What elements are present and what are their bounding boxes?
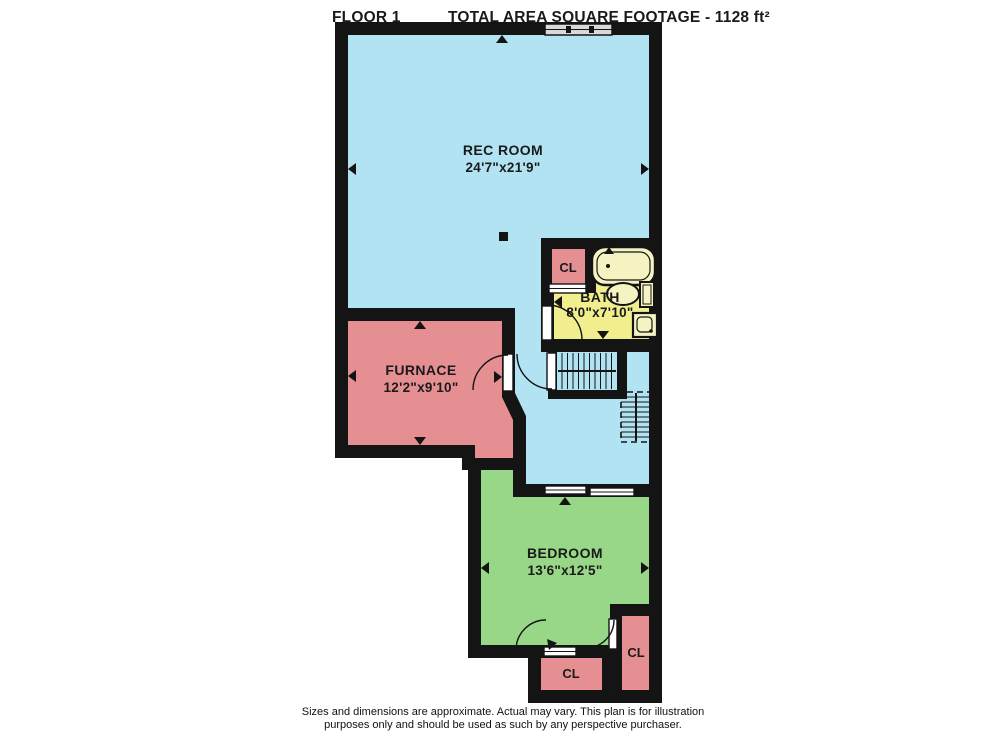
sink-icon (633, 313, 657, 337)
furnace-dims: 12'2"x9'10" (383, 380, 458, 395)
stair-wall-right (617, 345, 627, 395)
bedroom-dims: 13'6"x12'5" (527, 563, 602, 578)
bottom-closet-label: CL (562, 666, 579, 681)
bedroom-label: BEDROOM (527, 545, 603, 561)
rec-room-dims: 24'7"x21'9" (465, 160, 540, 175)
rec-room-label: REC ROOM (463, 142, 543, 158)
disclaimer-line2: purposes only and should be used as such… (324, 719, 682, 731)
stair-wall-bottom (548, 390, 627, 399)
post-marker (499, 232, 508, 241)
bath-closet-label: CL (559, 260, 576, 275)
right-closet-label: CL (627, 645, 644, 660)
window-top (545, 24, 612, 35)
window-bedroom (545, 486, 634, 496)
bath-label: BATH (580, 289, 619, 305)
furnace-label: FURNACE (385, 362, 456, 378)
bath-dims: 8'0"x7'10" (566, 305, 633, 320)
floor-plan-page: FLOOR 1 TOTAL AREA SQUARE FOOTAGE - 1128… (0, 0, 1000, 737)
bathtub-icon (592, 247, 655, 285)
disclaimer-line1: Sizes and dimensions are approximate. Ac… (302, 706, 705, 718)
floor-plan: FLOOR 1 TOTAL AREA SQUARE FOOTAGE - 1128… (0, 0, 1000, 737)
